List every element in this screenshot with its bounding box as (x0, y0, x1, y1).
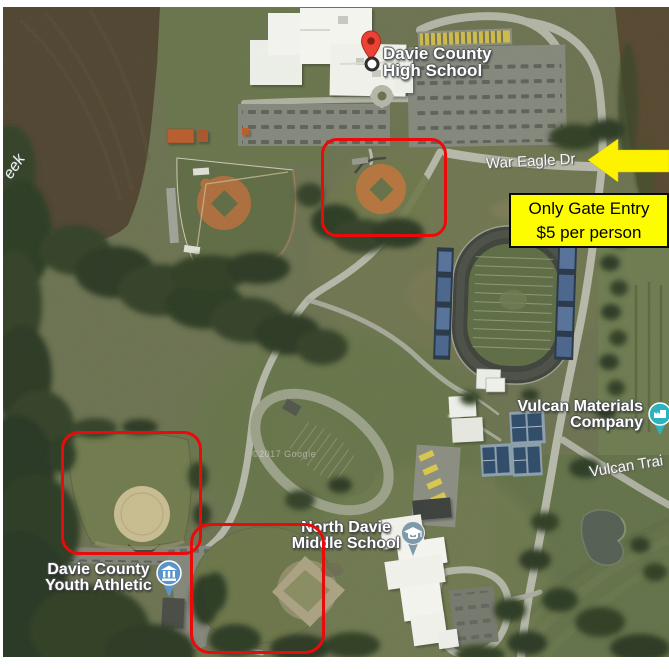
business-pin-icon[interactable] (648, 402, 669, 438)
vulcan-materials-label[interactable]: Vulcan Materials Company (515, 399, 643, 431)
youth-athletic-label-line1: Davie County (36, 562, 161, 578)
youth-athletic-label-line2: Youth Athletic (36, 578, 161, 594)
highlight-box-south-field (190, 523, 325, 654)
youth-athletic-label[interactable]: Davie County Youth Athletic (36, 562, 161, 594)
gate-entry-arrow (586, 137, 669, 184)
high-school-label-line1: Davie County (383, 45, 492, 62)
image-grain (3, 7, 669, 657)
high-school-label[interactable]: Davie County High School (383, 45, 492, 79)
map-watermark: ©2017 Google (252, 449, 316, 459)
location-dot-icon (363, 55, 381, 73)
vulcan-materials-label-line2: Company (515, 415, 643, 431)
highlight-box-west-field (61, 431, 202, 555)
civic-building-pin-icon[interactable] (156, 560, 182, 600)
satellite-map (3, 7, 669, 657)
highlight-box-practice-field (321, 138, 447, 237)
vulcan-materials-label-line1: Vulcan Materials (515, 399, 643, 415)
satellite-imagery (3, 7, 669, 657)
left-arrow-icon (588, 139, 669, 182)
gate-notice-line1: Only Gate Entry (511, 197, 667, 221)
gate-notice-line2: $5 per person (511, 221, 667, 245)
high-school-label-line2: High School (383, 62, 492, 79)
annotated-map-flyer: { "page": {"background": "#ffffff"}, "co… (0, 0, 669, 669)
school-pin-icon[interactable] (400, 520, 426, 560)
gate-notice-box: Only Gate Entry $5 per person (509, 193, 669, 248)
